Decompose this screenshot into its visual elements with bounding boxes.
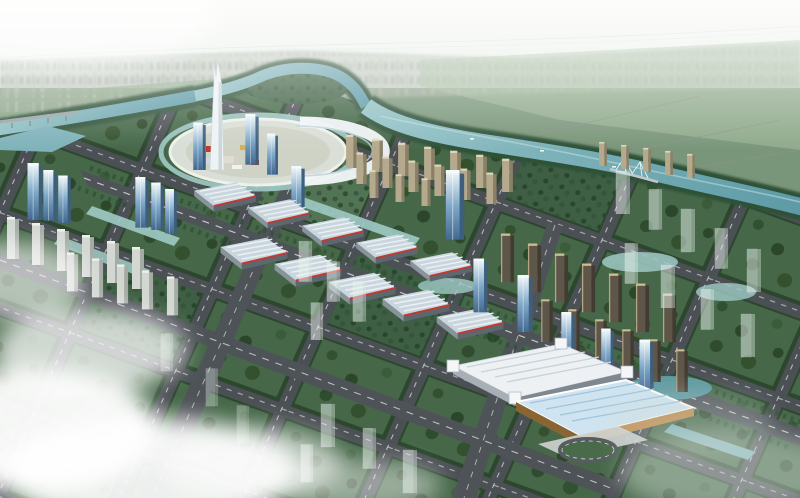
roundabout: roundabout interchange — [562, 441, 614, 459]
glass-tower — [518, 275, 533, 332]
glass-tower — [165, 189, 177, 233]
aerial-render: Aerial master-plan rendering of a planne… — [0, 0, 800, 498]
glass-tower — [639, 340, 653, 394]
glass-tower — [446, 170, 464, 240]
glass-tower — [43, 170, 56, 221]
aerial-render-stage: Aerial master-plan rendering of a planne… — [0, 0, 800, 498]
glass-tower — [58, 176, 71, 224]
fog-patch — [608, 390, 772, 450]
glass-tower — [473, 259, 487, 313]
glass-tower — [135, 177, 148, 228]
glass-tower — [151, 183, 164, 231]
glass-tower — [28, 163, 43, 220]
